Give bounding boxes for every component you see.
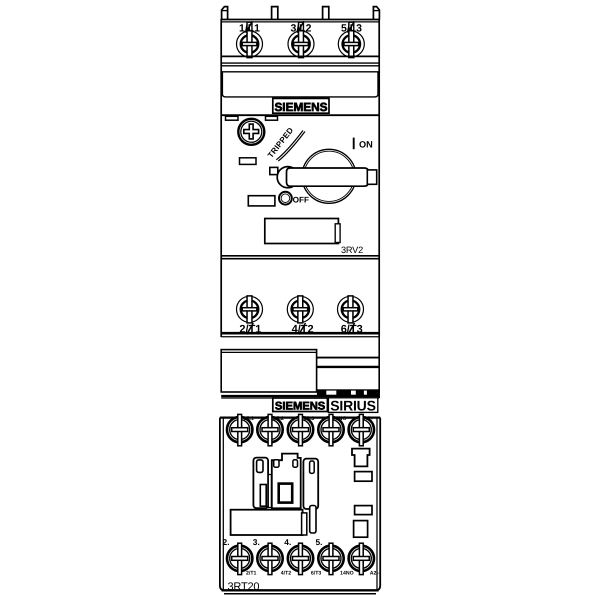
- svg-text:5.: 5.: [316, 537, 323, 547]
- svg-text:6/T3: 6/T3: [311, 571, 321, 577]
- svg-text:A1+: A1+: [363, 416, 373, 422]
- svg-text:3.: 3.: [253, 537, 260, 547]
- svg-text:2.: 2.: [223, 537, 230, 547]
- svg-text:A2–: A2–: [370, 571, 380, 577]
- svg-text:1/L1: 1/L1: [243, 416, 254, 422]
- svg-text:ON: ON: [359, 140, 373, 150]
- svg-text:5/L3: 5/L3: [341, 23, 362, 35]
- svg-text:5/L3: 5/L3: [304, 416, 315, 422]
- svg-text:4.: 4.: [284, 537, 291, 547]
- svg-text:3RT20: 3RT20: [228, 581, 260, 593]
- svg-text:SIRIUS: SIRIUS: [330, 398, 375, 414]
- svg-text:4/T2: 4/T2: [281, 571, 291, 577]
- svg-text:SIEMENS: SIEMENS: [274, 100, 327, 114]
- svg-text:13NO: 13NO: [332, 416, 346, 422]
- svg-text:1/L1: 1/L1: [239, 23, 260, 35]
- svg-text:2/T1: 2/T1: [246, 571, 256, 577]
- svg-text:3RV2: 3RV2: [341, 245, 363, 255]
- svg-text:3/L2: 3/L2: [290, 23, 311, 35]
- svg-text:OFF: OFF: [293, 196, 309, 205]
- svg-text:3/L2: 3/L2: [273, 416, 284, 422]
- svg-text:SIEMENS: SIEMENS: [275, 401, 326, 413]
- svg-text:14NO: 14NO: [340, 571, 354, 577]
